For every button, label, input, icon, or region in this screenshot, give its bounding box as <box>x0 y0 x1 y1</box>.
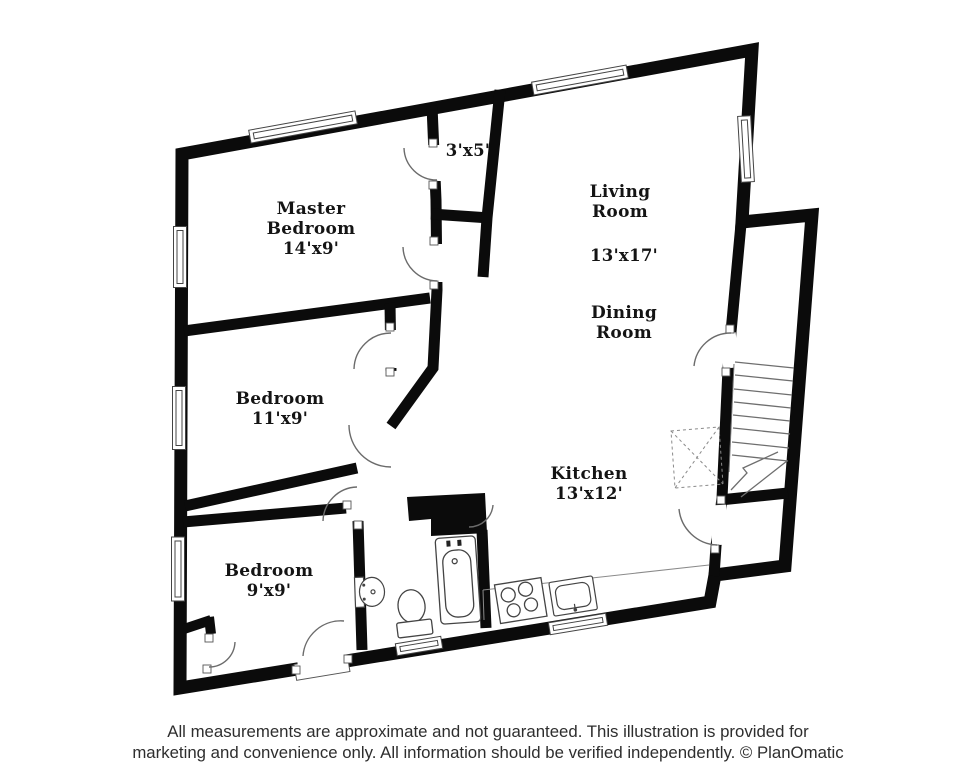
toilet-icon <box>393 588 433 638</box>
room-label-bedroom-9x9: Bedroom 9'x9' <box>207 561 331 601</box>
disclaimer: All measurements are approximate and not… <box>0 722 976 763</box>
staircase-icon <box>729 362 794 497</box>
floorplan-image: Master Bedroom 14'x9' Living Room 13'x17… <box>0 0 976 768</box>
room-dims-living-room: 13'x17' <box>574 246 674 266</box>
window-icon <box>532 65 629 95</box>
bathtub-icon <box>435 536 481 625</box>
room-dims: 13'x12' <box>527 484 651 504</box>
room-dims: 13'x17' <box>574 246 674 266</box>
room-dims: 9'x9' <box>207 581 331 601</box>
kitchen-sink-icon <box>549 576 598 616</box>
disclaimer-line-1: All measurements are approximate and not… <box>0 722 976 743</box>
door-arc <box>349 425 391 467</box>
window-icon <box>173 387 186 450</box>
entry-notch-wall <box>184 617 211 634</box>
room-dims: 11'x9' <box>218 409 342 429</box>
room-name: Bedroom <box>218 389 342 409</box>
room-dims: 3'x5' <box>433 141 503 161</box>
room-name: Master Bedroom <box>253 199 369 239</box>
room-label-bedroom-11x9: Bedroom 11'x9' <box>218 389 342 429</box>
room-label-living-room: Living Room <box>575 182 665 222</box>
room-name: Bedroom <box>207 561 331 581</box>
room-label-kitchen: Kitchen 13'x12' <box>527 464 651 504</box>
room-dims: 14'x9' <box>253 239 369 259</box>
pedestal-sink-icon <box>354 576 385 607</box>
door-arc <box>209 642 235 667</box>
chimney-block <box>407 493 487 536</box>
room-label-dining-room: Dining Room <box>579 303 669 343</box>
door-arc <box>303 621 344 656</box>
window-icon <box>172 537 185 601</box>
room-label-closet: 3'x5' <box>433 141 503 161</box>
window-icon <box>174 227 187 288</box>
disclaimer-line-2: marketing and convenience only. All info… <box>0 743 976 764</box>
floorplan-drawing <box>0 0 976 768</box>
room-name: Dining Room <box>579 303 669 343</box>
room-name: Kitchen <box>527 464 651 484</box>
stove-icon <box>494 578 547 624</box>
dashed-x-box-icon <box>671 427 723 488</box>
room-name: Living Room <box>575 182 665 222</box>
room-label-master-bedroom: Master Bedroom 14'x9' <box>253 199 369 259</box>
window-icon <box>548 613 607 634</box>
